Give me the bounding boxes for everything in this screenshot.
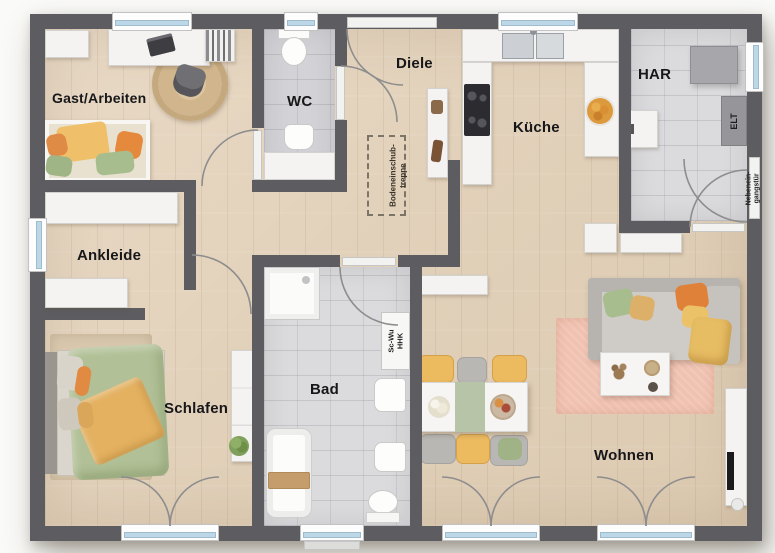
wall-diele-kueche — [448, 160, 460, 267]
table-runner — [455, 382, 485, 432]
window-glass — [287, 20, 315, 26]
attic-stairs-label: Bodeneinschub- treppe — [367, 135, 406, 216]
bath-basin-1 — [374, 378, 406, 412]
dining-chair-yellow-2 — [492, 355, 527, 383]
dining-chair-yellow-3 — [456, 434, 490, 464]
window-glass — [445, 532, 537, 538]
room-label-gast: Gast/Arbeiten — [52, 90, 146, 106]
window-glass — [753, 45, 759, 89]
french-door-wohnen-1 — [442, 524, 540, 541]
coffee-table-tray — [644, 360, 660, 376]
window-top-kueche — [498, 12, 578, 31]
window-glass — [115, 20, 189, 26]
sofa-pillow-ochre — [628, 294, 656, 322]
wall-bad-top-west — [252, 255, 340, 267]
kitchen-sink — [502, 33, 534, 59]
wc-toilet-bowl — [281, 37, 307, 66]
room-label-kueche: Küche — [513, 119, 560, 136]
elt-text: ELT — [729, 113, 739, 129]
shower — [264, 267, 320, 320]
coffee-table-plant — [610, 362, 628, 382]
sofa-throw-yellow — [687, 316, 732, 367]
entrance-threshold — [347, 17, 437, 28]
table-fruit-plate — [490, 394, 516, 420]
shaft-line1: Sc-Wu — [386, 329, 395, 352]
speaker — [731, 498, 744, 511]
wall-gast-bottom — [45, 180, 196, 192]
bookshelf — [205, 29, 235, 62]
door-leaf-har — [692, 223, 745, 232]
hall-sideboard-decor — [431, 100, 443, 114]
door-leaf-bad — [342, 257, 396, 266]
bedroom-plant — [229, 436, 249, 456]
wall-kueche-har — [619, 29, 631, 221]
cooktop — [464, 84, 490, 136]
room-label-schlafen: Schlafen — [164, 400, 228, 417]
dining-chair-gray-2 — [420, 434, 456, 464]
fruit-bowl — [587, 98, 613, 124]
sideboard-north — [415, 275, 488, 295]
tv-screen — [727, 452, 734, 490]
dining-chair-green-throw — [498, 438, 522, 460]
wc-vanity — [264, 152, 335, 180]
window-left-ankleide — [28, 218, 47, 272]
room-label-diele: Diele — [396, 55, 433, 72]
har-vent-unit — [690, 46, 738, 84]
wall-wc-right-top — [335, 29, 347, 66]
daybed-pillow-green — [95, 150, 135, 176]
room-label-wc: WC — [287, 93, 312, 110]
window-glass — [124, 532, 216, 538]
bathtub-tray — [268, 472, 310, 489]
bath-toilet-tank — [366, 512, 400, 523]
har-washer — [630, 110, 658, 148]
wall-gast-wc — [252, 29, 264, 128]
shower-drain — [302, 276, 310, 284]
dining-chair-gray-1 — [457, 357, 487, 384]
bath-toilet-bowl — [368, 490, 398, 514]
room-label-har: HAR — [638, 66, 671, 83]
room-label-bad: Bad — [310, 381, 339, 398]
kitchen-sink2 — [536, 33, 564, 59]
table-bouquet — [428, 396, 450, 418]
room-label-wohnen: Wohnen — [594, 447, 654, 464]
french-door-wohnen-2 — [597, 524, 695, 541]
window-glass — [303, 532, 361, 538]
coffee-table-vase — [648, 382, 658, 392]
wall-schlafen-bad — [252, 255, 264, 526]
side-door-label: Nebenein- gangstür — [737, 156, 763, 220]
wc-basin — [284, 124, 314, 150]
wall-har-bottom — [619, 221, 690, 233]
door-leaf-gast — [253, 130, 262, 180]
bath-basin-2 — [374, 442, 406, 472]
window-bottom-bad — [300, 524, 364, 541]
wall-ankleide-schlafen — [45, 308, 145, 320]
kitchen-counter-south — [584, 223, 617, 253]
wall-bad-right — [410, 255, 422, 526]
window-glass — [36, 221, 42, 269]
wall-ankleide-east — [184, 192, 196, 290]
window-glass — [501, 20, 575, 26]
attic-stairs-line2: treppe — [398, 163, 407, 187]
shaft-line2: HHK — [395, 333, 404, 349]
elt-label: ELT — [721, 96, 747, 146]
cabinet — [45, 30, 89, 58]
door-leaf-wc — [336, 66, 345, 120]
side-door-line2: gangstür — [754, 173, 761, 203]
wall-wc-bottom — [252, 180, 347, 192]
wardrobe-bottom — [45, 278, 128, 308]
window-glass — [600, 532, 692, 538]
daybed-pillow-green-left — [45, 154, 74, 177]
floor-plan: Gast/Arbeiten WC Diele Küche HAR Ankleid… — [0, 0, 775, 553]
sideboard-har-south — [620, 233, 682, 253]
side-door-line1: Nebenein- — [746, 171, 753, 205]
window-top-wc — [284, 12, 318, 31]
wall-wc-right-bottom — [335, 120, 347, 192]
window-bad-sill — [304, 541, 360, 550]
attic-stairs-line1: Bodeneinschub- — [389, 144, 398, 207]
shaft-label: Sc-Wu HHK — [381, 312, 410, 370]
window-right-har — [745, 42, 764, 92]
wardrobe-top — [45, 192, 178, 224]
french-door-schlafen — [121, 524, 219, 541]
bed-headboard — [45, 352, 57, 474]
dining-chair-yellow-1 — [418, 355, 454, 383]
window-top-gast — [112, 12, 192, 31]
room-label-ankleide: Ankleide — [77, 247, 141, 264]
